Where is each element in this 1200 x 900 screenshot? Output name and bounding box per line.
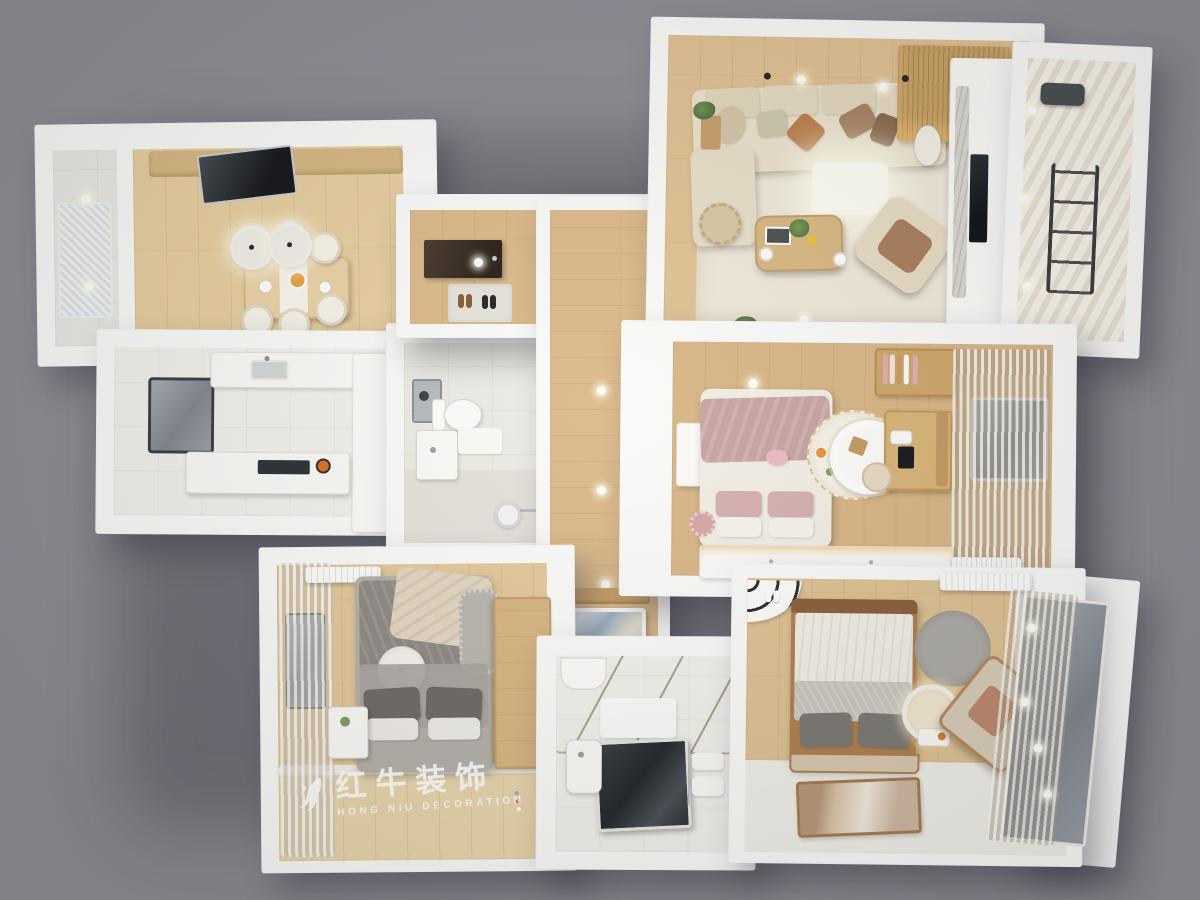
hanging-beads bbox=[515, 791, 519, 795]
room-bedroom-right bbox=[728, 564, 1086, 867]
shower-head bbox=[495, 502, 521, 528]
master-curtains bbox=[951, 349, 1051, 576]
rug-motif-orange bbox=[816, 448, 826, 458]
faucet bbox=[578, 752, 584, 758]
desk-chair bbox=[862, 462, 892, 492]
cooktop bbox=[258, 460, 310, 474]
papers bbox=[890, 430, 912, 444]
book bbox=[883, 354, 888, 384]
side-table bbox=[701, 115, 722, 149]
book bbox=[890, 354, 895, 384]
nightstand-plant bbox=[340, 717, 350, 727]
slipper bbox=[765, 590, 771, 602]
book bbox=[913, 355, 918, 385]
vanity bbox=[416, 430, 458, 480]
sink bbox=[250, 360, 288, 380]
downlight bbox=[749, 379, 758, 388]
pillow bbox=[717, 517, 761, 537]
throw-pillow bbox=[756, 109, 789, 138]
wardrobe-handle bbox=[769, 559, 773, 563]
wardrobe-handle bbox=[869, 560, 873, 564]
pillow bbox=[767, 491, 813, 517]
headboard bbox=[791, 599, 917, 615]
towel bbox=[692, 752, 724, 770]
pot bbox=[316, 458, 331, 473]
shower-zone-floor bbox=[404, 470, 552, 543]
plate bbox=[259, 280, 273, 294]
dark-glass-floor bbox=[594, 738, 692, 832]
food-plate bbox=[288, 271, 306, 289]
pillow-white bbox=[428, 717, 480, 739]
nightstand bbox=[328, 706, 368, 758]
drying-rack bbox=[1046, 163, 1100, 295]
glowing-light-panel bbox=[811, 161, 888, 214]
pillow-dark bbox=[799, 712, 852, 747]
tv bbox=[969, 154, 989, 242]
frosted-panel bbox=[57, 202, 113, 319]
plush-toy bbox=[766, 449, 788, 465]
hanging-beads bbox=[516, 799, 520, 803]
pillow bbox=[769, 517, 813, 537]
pink-pouf bbox=[689, 511, 715, 537]
room-bedroom-left bbox=[259, 545, 578, 874]
kitchen-window bbox=[148, 377, 215, 453]
tablet bbox=[898, 446, 914, 468]
room-bathroom-second bbox=[535, 635, 756, 870]
shoe bbox=[466, 294, 472, 308]
ceiling-speaker bbox=[764, 73, 771, 80]
downlight bbox=[797, 75, 806, 84]
pillow bbox=[715, 491, 761, 517]
shoe bbox=[458, 294, 464, 308]
book bbox=[904, 354, 909, 384]
downlight bbox=[597, 486, 606, 495]
toilet bbox=[444, 399, 482, 431]
downlight bbox=[1027, 623, 1036, 632]
vanity-sink-drain bbox=[430, 447, 436, 453]
white-panel bbox=[600, 698, 676, 738]
towel bbox=[692, 776, 724, 796]
downlight bbox=[474, 258, 483, 267]
front-door bbox=[424, 240, 502, 278]
ceiling-speaker bbox=[902, 75, 909, 82]
toilet-partial bbox=[560, 658, 606, 690]
treadmill bbox=[1040, 82, 1085, 106]
downlight bbox=[85, 282, 94, 291]
slipper bbox=[773, 590, 779, 602]
white-curtains bbox=[279, 563, 336, 857]
desk-shelf bbox=[936, 411, 949, 487]
room-master-bedroom bbox=[619, 320, 1077, 600]
shoe bbox=[490, 295, 496, 309]
jar bbox=[938, 732, 946, 740]
downlight bbox=[1043, 790, 1052, 799]
foot-bench bbox=[789, 753, 919, 775]
white-duvet bbox=[794, 613, 913, 690]
pendant-cord bbox=[249, 245, 254, 250]
pendant-cord bbox=[287, 242, 292, 247]
plate bbox=[319, 281, 332, 294]
pedestal-sink bbox=[566, 740, 602, 794]
book bbox=[897, 354, 902, 384]
bath-mat bbox=[458, 428, 502, 454]
faucet bbox=[264, 356, 269, 361]
downlight bbox=[1020, 697, 1029, 706]
downlight bbox=[81, 194, 90, 203]
shoe bbox=[482, 295, 488, 309]
room-living bbox=[645, 17, 1045, 348]
downlight bbox=[597, 386, 606, 395]
floorplan-render: ® 红牛装饰 HONG NIU DECORATION bbox=[0, 0, 1200, 900]
downlight bbox=[879, 83, 888, 92]
room-kitchen bbox=[95, 329, 412, 536]
table-plant bbox=[789, 219, 809, 237]
room-balcony-top-right bbox=[999, 41, 1152, 359]
door-handle bbox=[492, 256, 497, 261]
downlight bbox=[1034, 744, 1043, 753]
books bbox=[765, 227, 791, 245]
pillow-white bbox=[366, 718, 418, 740]
washer-door bbox=[419, 391, 429, 401]
runner-art-rug bbox=[796, 777, 922, 838]
hanging-beads bbox=[517, 807, 521, 811]
